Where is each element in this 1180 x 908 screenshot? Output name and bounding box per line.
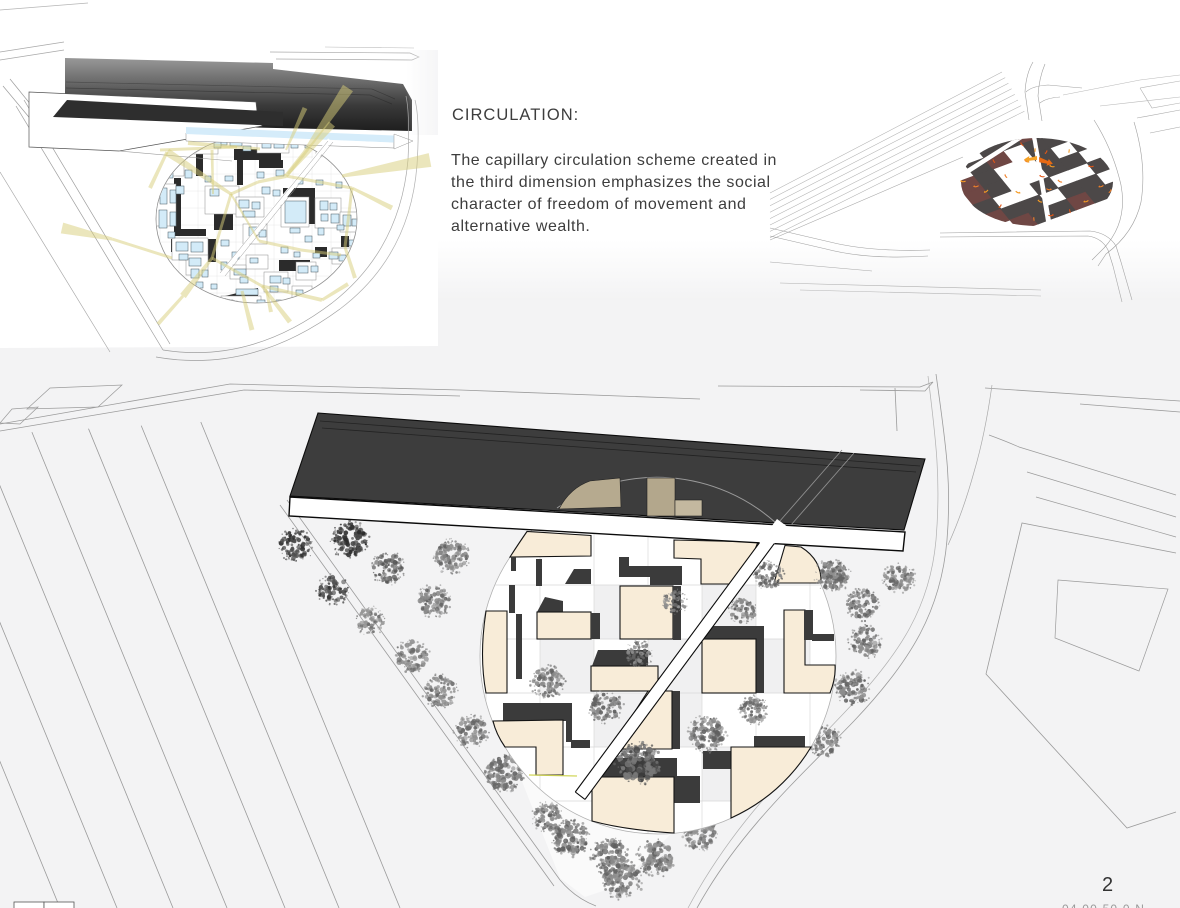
svg-text:the third dimension emphasizes: the third dimension emphasizes the socia…: [451, 174, 771, 191]
svg-text:CIRCULATION:: CIRCULATION:: [452, 106, 579, 124]
svg-text:04 00 50 0 N: 04 00 50 0 N: [1062, 902, 1145, 908]
svg-text:The capillary circulation sche: The capillary circulation scheme created…: [451, 152, 777, 169]
svg-text:character of freedom of moveme: character of freedom of movement and: [451, 196, 747, 213]
svg-text:alternative wealth.: alternative wealth.: [451, 218, 590, 235]
svg-text:2: 2: [1102, 874, 1113, 896]
